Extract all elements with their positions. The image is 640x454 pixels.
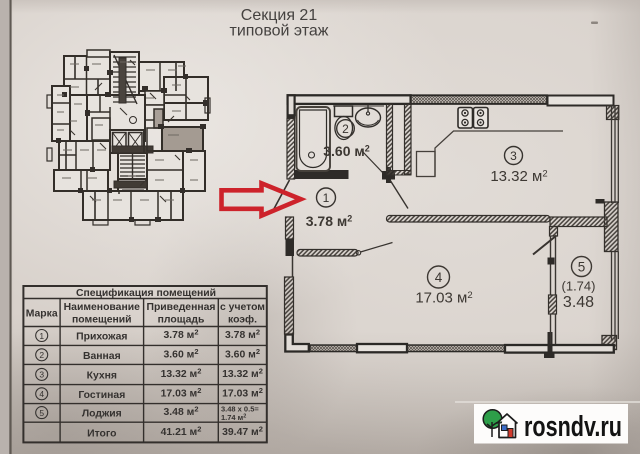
svg-text:Спецификация помещений: Спецификация помещений [76, 287, 216, 299]
svg-text:Прихожая: Прихожая [76, 332, 127, 343]
svg-text:4: 4 [435, 270, 443, 285]
svg-text:2: 2 [342, 122, 349, 136]
svg-text:3: 3 [510, 149, 517, 163]
svg-text:3.60 м2: 3.60 м2 [225, 347, 260, 361]
svg-text:3.78 м2: 3.78 м2 [225, 328, 260, 342]
svg-text:Гостиная: Гостиная [78, 390, 125, 401]
svg-text:3.60 м2: 3.60 м2 [164, 347, 199, 361]
svg-text:Марка: Марка [26, 309, 58, 320]
svg-text:Кухня: Кухня [87, 370, 117, 381]
svg-text:Лоджия: Лоджия [82, 409, 122, 420]
svg-text:3.48 м2: 3.48 м2 [164, 405, 199, 419]
svg-text:Ванная: Ванная [83, 351, 121, 362]
svg-text:17.03 м2: 17.03 м2 [415, 290, 472, 307]
svg-text:коэф.: коэф. [228, 314, 257, 326]
svg-text:помещений: помещений [72, 315, 132, 326]
svg-text:типовой этаж: типовой этаж [230, 23, 329, 40]
svg-text:площадь: площадь [158, 315, 205, 326]
svg-text:3: 3 [39, 370, 44, 380]
svg-text:13.32 м2: 13.32 м2 [490, 168, 547, 185]
svg-text:Наименование: Наименование [64, 302, 140, 313]
svg-text:17.03 м2: 17.03 м2 [222, 386, 263, 400]
svg-text:Приведенная: Приведенная [146, 302, 215, 313]
svg-text:3.48: 3.48 [563, 294, 594, 311]
svg-text:(1.74): (1.74) [562, 279, 596, 294]
svg-text:3.78 м2: 3.78 м2 [164, 328, 199, 342]
svg-text:13.32 м2: 13.32 м2 [161, 366, 202, 380]
svg-text:rosndv.ru: rosndv.ru [524, 411, 622, 443]
svg-text:1: 1 [323, 191, 330, 205]
svg-text:с учетом: с учетом [220, 302, 265, 313]
svg-text:3.78 м2: 3.78 м2 [306, 213, 353, 229]
svg-text:17.03 м2: 17.03 м2 [161, 386, 202, 400]
svg-text:5: 5 [39, 408, 44, 418]
svg-text:2: 2 [39, 350, 44, 360]
svg-text:Секция 21: Секция 21 [241, 7, 318, 24]
svg-text:4: 4 [39, 389, 44, 399]
svg-text:41.21 м2: 41.21 м2 [161, 424, 202, 438]
svg-text:1: 1 [39, 331, 44, 341]
svg-text:5: 5 [578, 260, 586, 275]
svg-text:13.32 м2: 13.32 м2 [222, 366, 263, 380]
svg-text:Итого: Итого [87, 428, 116, 439]
svg-text:1.74 м2: 1.74 м2 [221, 413, 246, 422]
svg-text:3.60 м2: 3.60 м2 [323, 143, 370, 159]
svg-text:39.47 м2: 39.47 м2 [222, 424, 263, 438]
